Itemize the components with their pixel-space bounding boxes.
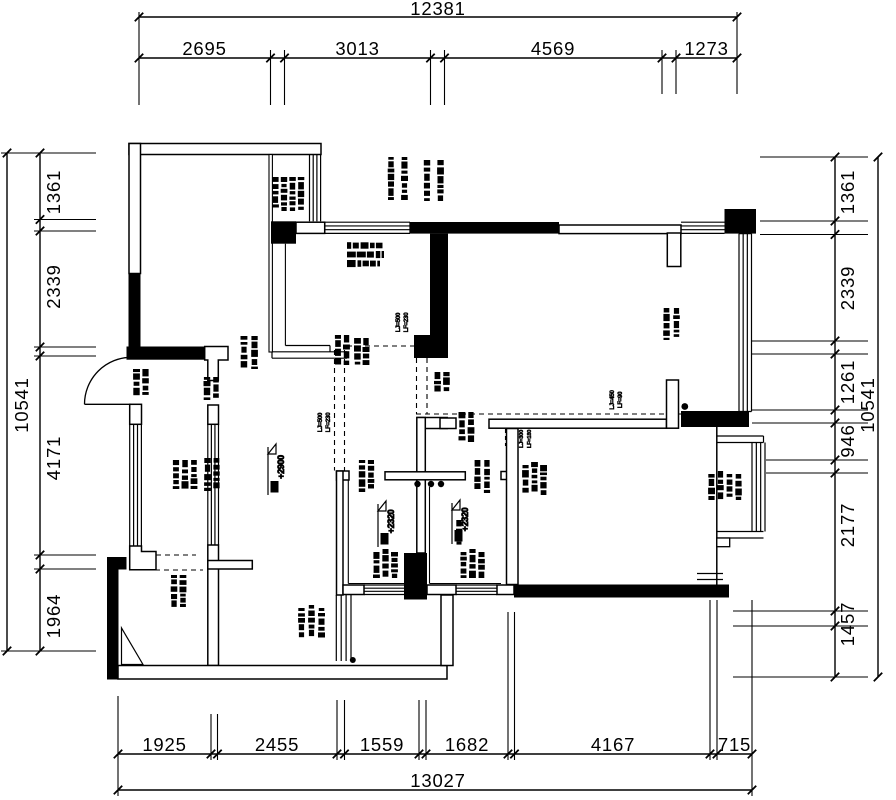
svg-text:2695: 2695 [182,38,226,59]
svg-text:LF=230: LF=230 [325,412,332,433]
svg-text:1361: 1361 [837,170,858,214]
svg-text:13027: 13027 [410,770,465,791]
svg-text:10541: 10541 [857,377,878,432]
svg-text:1273: 1273 [684,38,728,59]
svg-text:1261: 1261 [837,360,858,404]
svg-text:1361: 1361 [43,170,64,214]
svg-text:946: 946 [837,424,858,457]
svg-text:2339: 2339 [43,264,64,308]
svg-text:LF=180: LF=180 [527,430,533,448]
svg-text:LF=90: LF=90 [617,391,624,408]
svg-text:10541: 10541 [11,377,32,432]
svg-text:1559: 1559 [360,734,404,755]
svg-text:LF=230: LF=230 [403,312,410,333]
svg-text:LJ=450: LJ=450 [609,389,616,409]
svg-text:3013: 3013 [335,38,379,59]
svg-text:2455: 2455 [255,734,299,755]
svg-text:LJ=300: LJ=300 [519,430,525,448]
svg-text:4569: 4569 [531,38,575,59]
svg-text:2339: 2339 [837,266,858,310]
svg-text:1964: 1964 [43,594,64,638]
svg-text:+2320: +2320 [386,509,396,533]
svg-text:715: 715 [718,734,751,755]
svg-text:4167: 4167 [591,734,635,755]
svg-text:LJ=500: LJ=500 [395,312,402,332]
svg-text:4171: 4171 [43,436,64,480]
svg-text:1682: 1682 [445,734,489,755]
svg-text:1457: 1457 [837,602,858,646]
svg-text:+2320: +2320 [460,507,470,531]
svg-text:12381: 12381 [410,0,465,19]
svg-text:2177: 2177 [837,503,858,547]
svg-text:1925: 1925 [142,734,186,755]
svg-text:LJ=500: LJ=500 [317,412,324,432]
svg-text:+2900: +2900 [276,455,286,479]
